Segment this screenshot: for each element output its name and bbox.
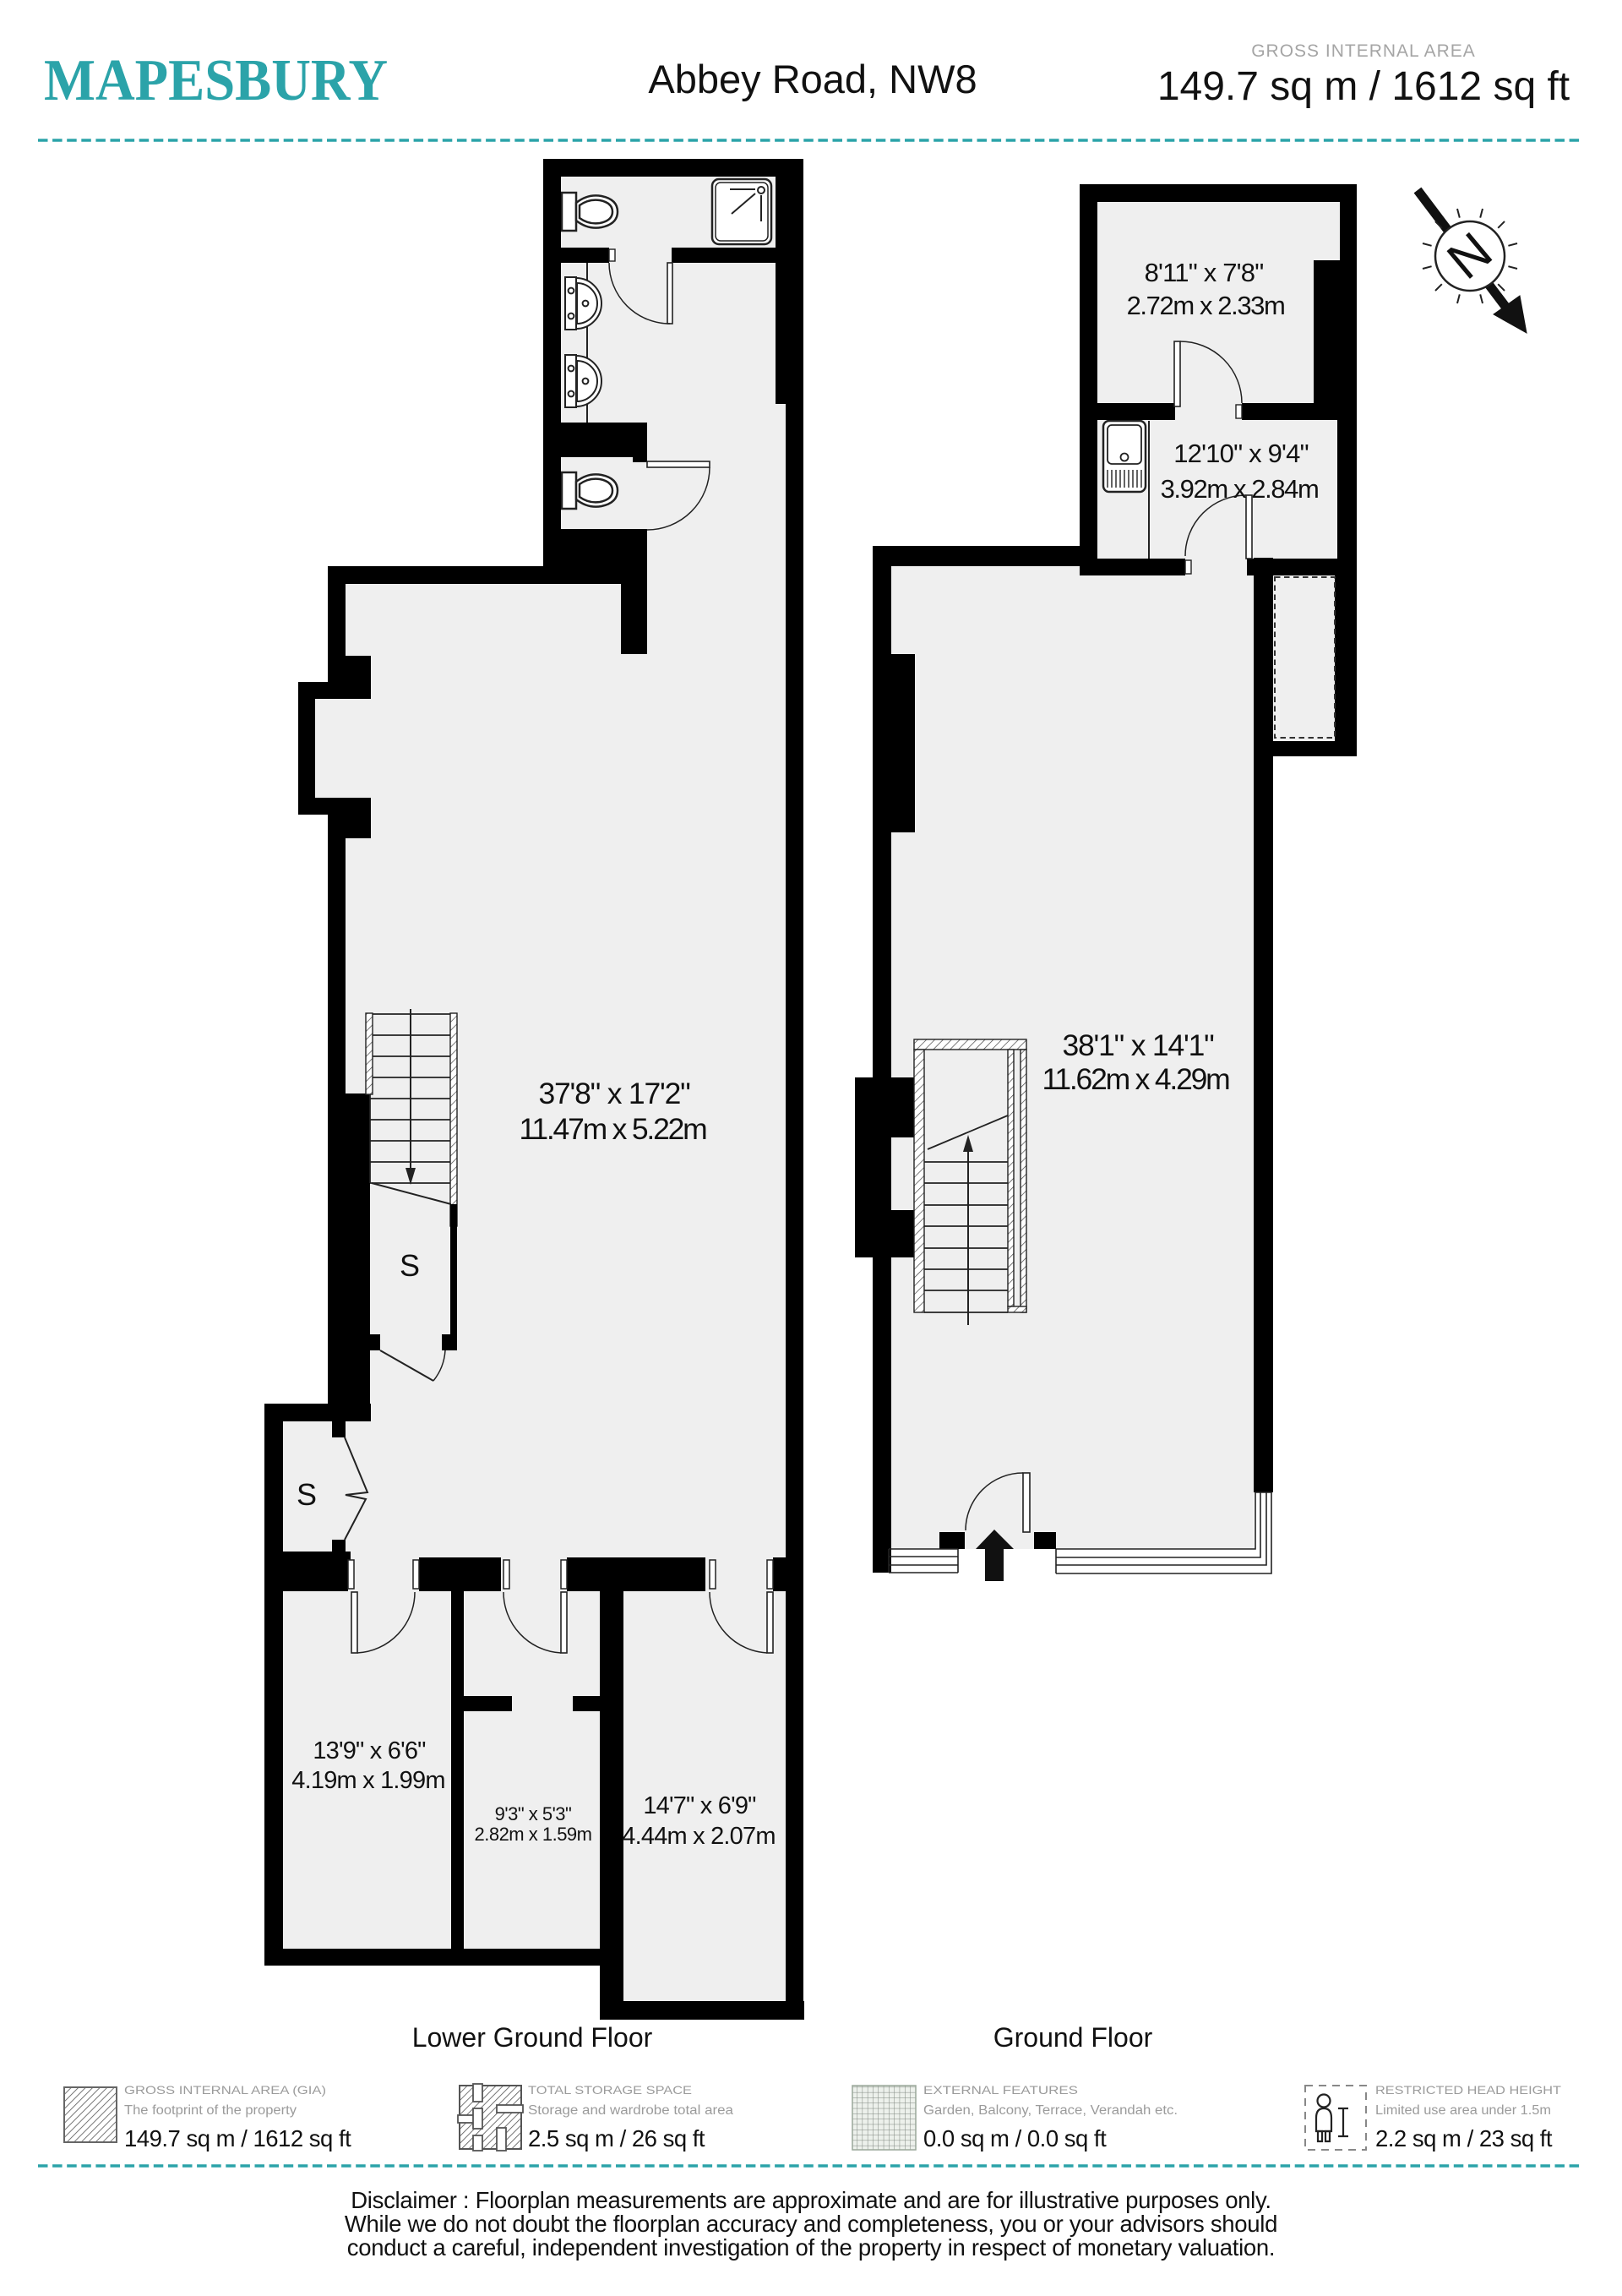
svg-text:2.82m x 1.59m: 2.82m x 1.59m [474, 1824, 591, 1845]
svg-text:TOTAL STORAGE SPACE: TOTAL STORAGE SPACE [528, 2083, 692, 2097]
svg-text:149.7 sq m / 1612 sq ft: 149.7 sq m / 1612 sq ft [124, 2125, 351, 2151]
svg-text:11.62m x 4.29m: 11.62m x 4.29m [1042, 1062, 1229, 1096]
svg-text:Disclaimer : Floorplan measure: Disclaimer : Floorplan measurements are … [351, 2187, 1271, 2213]
svg-text:11.47m x 5.22m: 11.47m x 5.22m [519, 1112, 706, 1146]
svg-text:38'1" x 14'1": 38'1" x 14'1" [1062, 1028, 1214, 1062]
svg-text:8'11" x 7'8": 8'11" x 7'8" [1145, 258, 1264, 287]
svg-text:While we do not doubt the floo: While we do not doubt the floorplan accu… [345, 2211, 1277, 2237]
svg-text:37'8" x 17'2": 37'8" x 17'2" [538, 1077, 690, 1110]
svg-text:GROSS INTERNAL AREA: GROSS INTERNAL AREA [1251, 41, 1476, 61]
svg-text:2.72m x 2.33m: 2.72m x 2.33m [1127, 291, 1285, 320]
svg-text:GROSS INTERNAL AREA (GIA): GROSS INTERNAL AREA (GIA) [124, 2083, 326, 2097]
svg-text:Storage and wardrobe total are: Storage and wardrobe total area [528, 2103, 733, 2118]
svg-text:9'3" x 5'3": 9'3" x 5'3" [495, 1803, 572, 1824]
svg-text:S: S [400, 1248, 420, 1283]
svg-text:Abbey Road, NW8: Abbey Road, NW8 [648, 57, 977, 101]
svg-text:0.0 sq m / 0.0 sq ft: 0.0 sq m / 0.0 sq ft [923, 2125, 1107, 2151]
svg-text:Garden, Balcony, Terrace, Vera: Garden, Balcony, Terrace, Verandah etc. [923, 2103, 1178, 2118]
svg-text:12'10" x 9'4": 12'10" x 9'4" [1173, 439, 1309, 468]
svg-text:conduct a careful, independent: conduct a careful, independent investiga… [347, 2234, 1275, 2261]
svg-text:3.92m x 2.84m: 3.92m x 2.84m [1161, 474, 1319, 504]
svg-text:4.44m x 2.07m: 4.44m x 2.07m [622, 1823, 775, 1850]
svg-text:EXTERNAL FEATURES: EXTERNAL FEATURES [923, 2083, 1078, 2097]
svg-text:The footprint of the property: The footprint of the property [124, 2103, 297, 2118]
svg-text:Ground Floor: Ground Floor [993, 2022, 1153, 2053]
svg-text:2.5 sq m / 26 sq ft: 2.5 sq m / 26 sq ft [528, 2125, 705, 2151]
svg-text:2.2 sq m / 23 sq ft: 2.2 sq m / 23 sq ft [1375, 2125, 1553, 2151]
svg-text:MAPESBURY: MAPESBURY [44, 48, 388, 113]
svg-text:S: S [297, 1477, 317, 1512]
svg-text:Lower Ground Floor: Lower Ground Floor [412, 2022, 653, 2053]
svg-text:Limited use area under 1.5m: Limited use area under 1.5m [1375, 2103, 1551, 2118]
svg-text:13'9" x 6'6": 13'9" x 6'6" [313, 1737, 426, 1764]
svg-text:4.19m x 1.99m: 4.19m x 1.99m [291, 1767, 444, 1794]
svg-text:RESTRICTED HEAD HEIGHT: RESTRICTED HEAD HEIGHT [1375, 2083, 1562, 2097]
svg-text:149.7 sq m / 1612 sq ft: 149.7 sq m / 1612 sq ft [1157, 64, 1570, 109]
svg-text:14'7" x 6'9": 14'7" x 6'9" [643, 1792, 756, 1819]
